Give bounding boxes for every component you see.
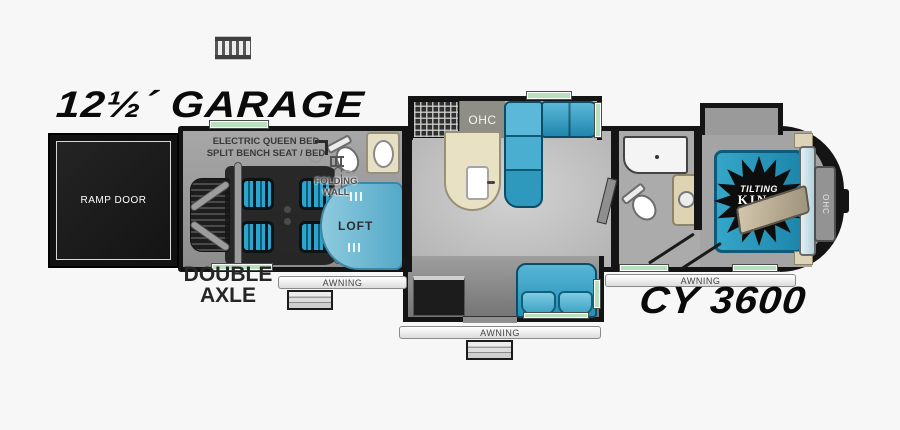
window-strip	[527, 92, 571, 99]
double-axle-label: DOUBLE AXLE	[176, 264, 280, 306]
garage-note-line2: SPLIT BENCH SEAT / BED	[186, 148, 346, 160]
double-axle-line2: AXLE	[176, 285, 280, 306]
window-strip	[733, 265, 777, 271]
shower-drain	[655, 155, 659, 159]
atv-seat	[241, 221, 274, 253]
folding-wall-line2: WALL	[306, 187, 366, 198]
window-strip	[524, 313, 588, 318]
island-faucet	[487, 181, 495, 184]
loft-label: LOFT	[338, 219, 373, 233]
bathroom-sink	[366, 132, 400, 174]
console-cupholder	[284, 218, 291, 225]
wall	[694, 126, 702, 230]
shower	[623, 136, 688, 174]
entry-steps	[466, 340, 513, 360]
sink-basin	[373, 140, 394, 168]
ramp-door-panel: RAMP DOOR	[56, 141, 171, 260]
loft-ladder-icon	[348, 243, 360, 252]
seat-cushion	[558, 291, 593, 315]
awning-bar: AWNING	[399, 326, 601, 339]
garage-note-line1: ELECTRIC QUEEN BED	[186, 136, 346, 148]
sectional-sofa-chaise	[504, 101, 543, 208]
bedroom-overhead-cabinet: OHC	[814, 166, 836, 242]
loveseat-sofa	[516, 263, 597, 318]
sink-basin	[678, 191, 695, 208]
model-title: CY 3600	[637, 280, 808, 323]
entry-steps	[287, 290, 333, 310]
bedroom-slideout	[700, 103, 783, 135]
entertainment-center	[413, 276, 465, 316]
folding-wall-label: FOLDING WALL	[306, 176, 366, 198]
roof-ladder-icon	[215, 37, 251, 59]
sectional-sofa-corner	[541, 101, 598, 138]
window-strip	[620, 265, 668, 271]
island-sink	[466, 166, 489, 200]
double-axle-line1: DOUBLE	[176, 264, 280, 285]
garage-size-title: 12½´ GARAGE	[55, 84, 367, 126]
window-strip	[594, 280, 600, 308]
awning-bar: AWNING	[278, 276, 407, 289]
ramp-door-label: RAMP DOOR	[81, 195, 147, 206]
ramp-door: RAMP DOOR	[48, 133, 179, 268]
console-cupholder	[284, 206, 291, 213]
atv-seat	[241, 178, 274, 210]
folding-wall-line1: FOLDING	[306, 176, 366, 187]
bedroom-ohc-label: OHC	[821, 194, 830, 215]
wall	[402, 126, 412, 272]
window-strip	[595, 103, 601, 137]
seat-cushion	[521, 291, 556, 315]
garage-features-label: ELECTRIC QUEEN BED SPLIT BENCH SEAT / BE…	[186, 136, 346, 160]
roll-bar	[235, 163, 241, 268]
floorplan-cy3600: 12½´ GARAGE RAMP DOOR OHC ELECTRIC QUEEN…	[0, 0, 900, 430]
entry-door	[463, 316, 517, 323]
